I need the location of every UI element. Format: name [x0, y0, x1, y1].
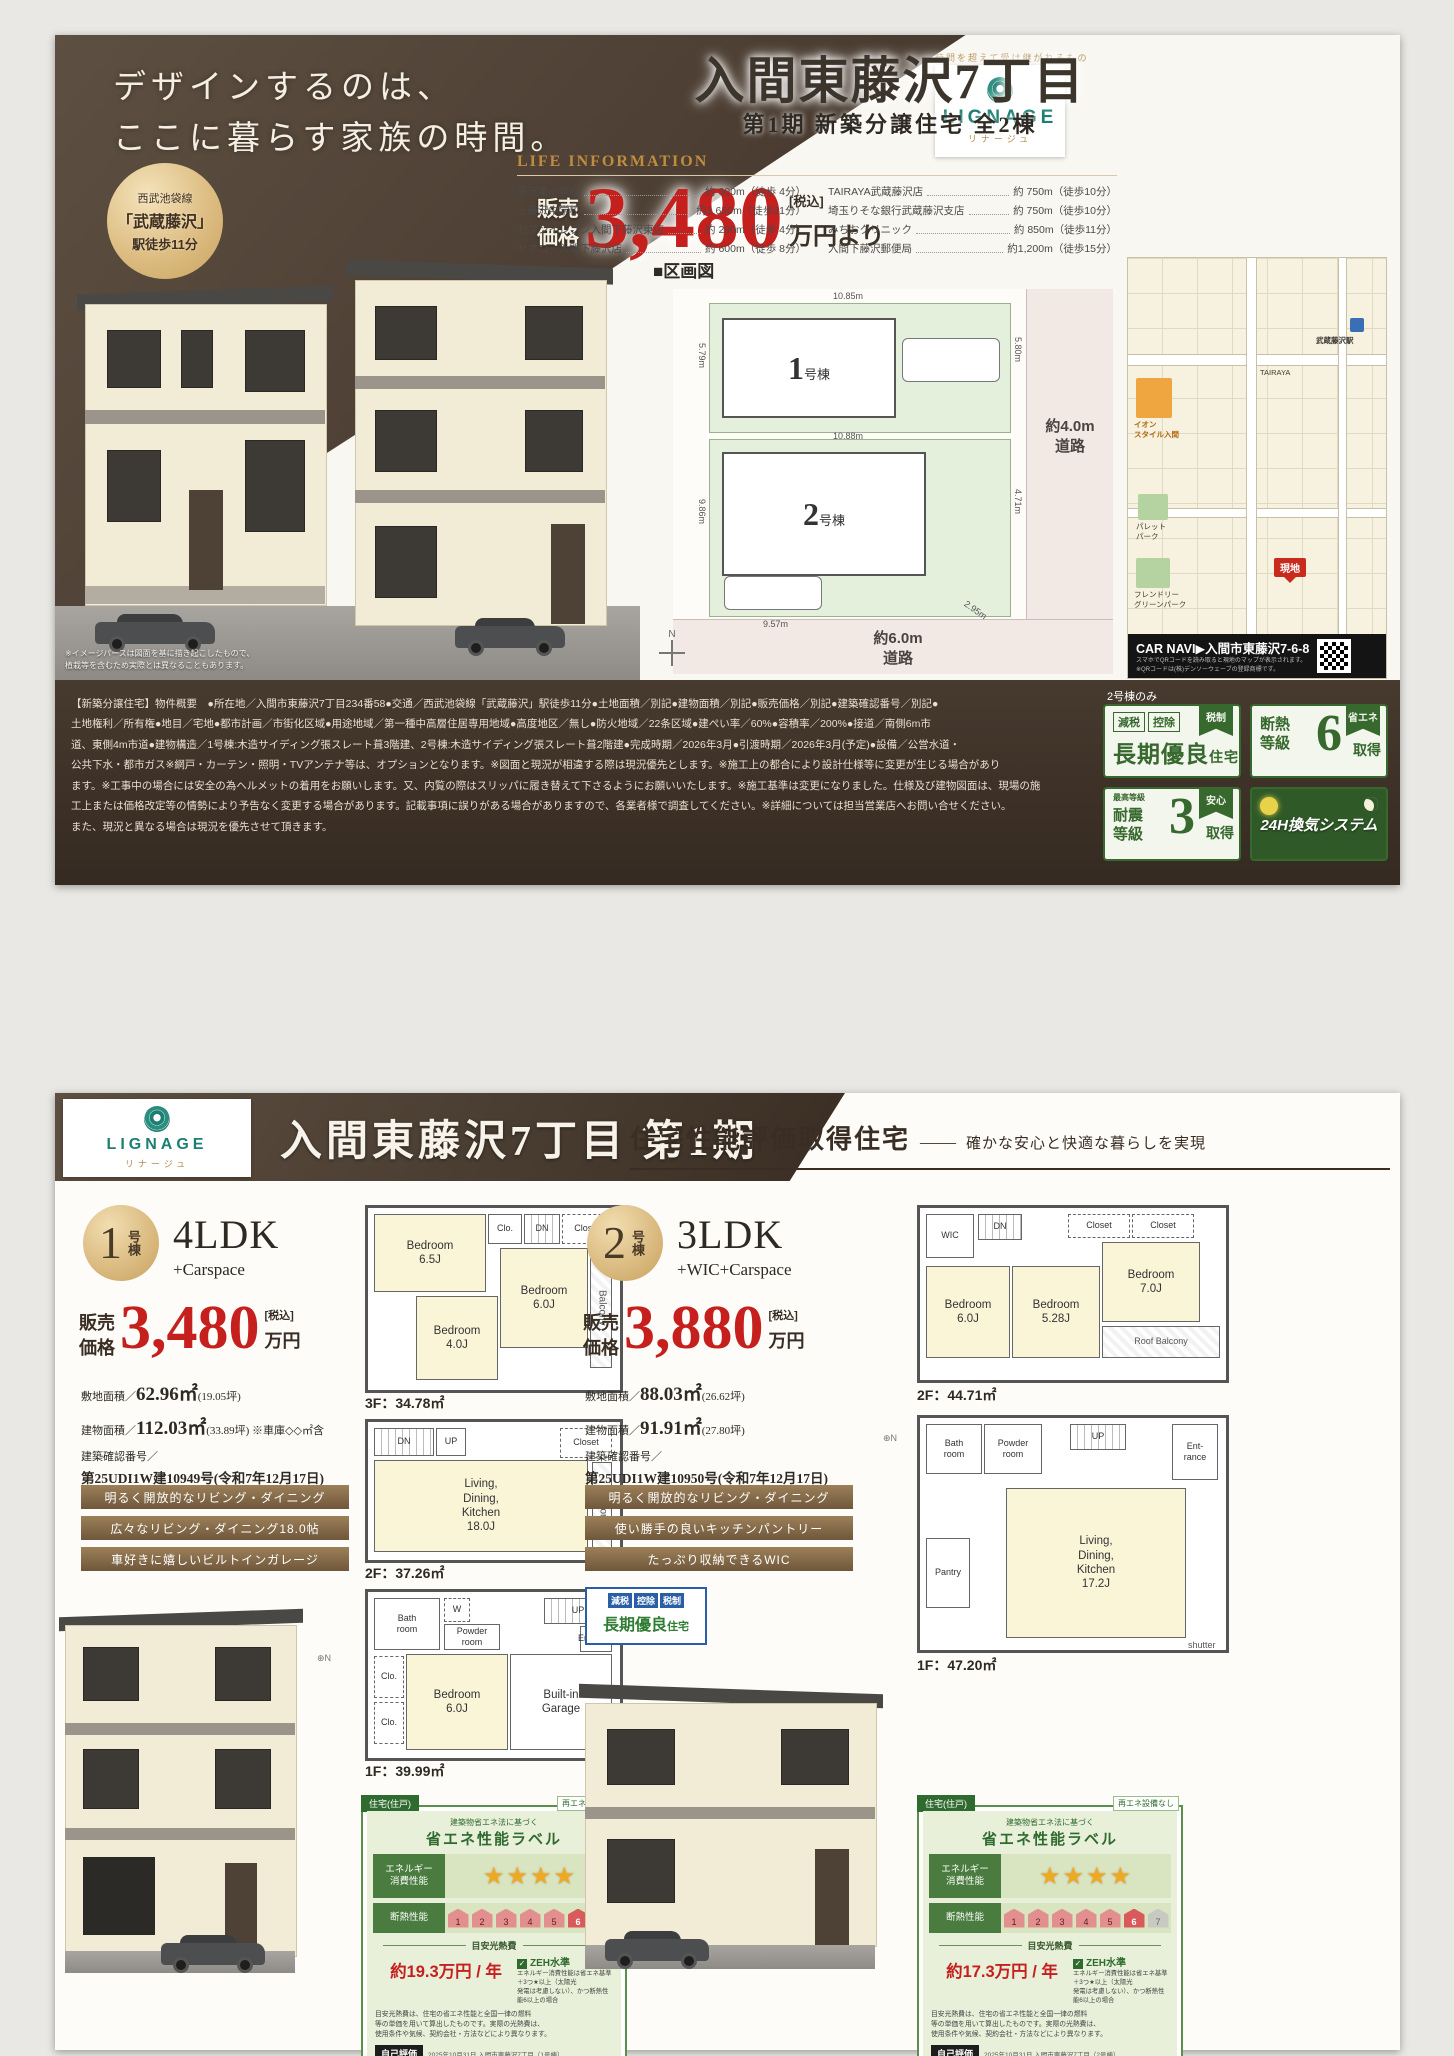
- map-label: パレット パーク: [1136, 522, 1166, 542]
- annual-cost: 約19.3万円 / 年: [375, 1958, 517, 1982]
- unit1-type: 4LDK+Carspace: [173, 1211, 279, 1280]
- page-title: 入間東藤沢7丁目: [610, 41, 1170, 113]
- legal-band: 【新築分譲住宅】物件概要 ●所在地／入間市東藤沢7丁目234番58●交通／西武池…: [55, 680, 1400, 885]
- road-east-label: 約4.0m 道路: [1029, 417, 1111, 456]
- energy-title: 省エネ性能ラベル: [923, 1828, 1177, 1849]
- room-label: Bedroom 6.0J: [406, 1654, 508, 1750]
- energy-title: 省エネ性能ラベル: [367, 1828, 621, 1849]
- moon-icon: [1364, 797, 1378, 811]
- unit2-1f-plan: Bath room Powder room UP Ent- rance Pant…: [917, 1415, 1229, 1653]
- dim-label: 10.88m: [833, 431, 863, 441]
- list-item: みちおクリニック約 850m（徒歩11分）: [828, 222, 1117, 237]
- unit2-energy-label: 住宅(住戸) 再エネ設備なし 建築物省エネ法に基づく 省エネ性能ラベル エネルギ…: [917, 1805, 1183, 2056]
- room-label: Bath room: [374, 1598, 440, 1650]
- legal-line: 道、東側4m市道●建物構造／1号棟:木造サイディング張スレート葺3階建、2号棟:…: [71, 735, 1101, 755]
- cost-small-print: 目安光熱費は、住宅の省エネ性能と全国一律の燃料 等の単価を用いて算出したものです…: [375, 2010, 613, 2041]
- room-label: Bedroom 5.28J: [1012, 1266, 1100, 1358]
- room-label: DN: [524, 1214, 560, 1244]
- unit1-feature-tags: 明るく開放的なリビング・ダイニング 広々なリビング・ダイニング18.0帖 車好き…: [81, 1485, 349, 1571]
- room-label: Pantry: [926, 1538, 970, 1608]
- energy-stars: ★★★★: [1039, 1862, 1133, 1891]
- legal-line: 【新築分譲住宅】物件概要 ●所在地／入間市東藤沢7丁目234番58●交通／西武池…: [71, 694, 1101, 714]
- station-line: 西武池袋線: [138, 190, 193, 206]
- carnavi-address: CAR NAVI▶入間市東藤沢7-6-8: [1136, 638, 1309, 657]
- annual-cost: 約17.3万円 / 年: [931, 1958, 1073, 1982]
- lot-2: 2号棟: [709, 439, 1011, 617]
- site-plan-drawing: 約4.0m 道路 約6.0m 道路 1号棟 2号棟 10: [673, 289, 1113, 674]
- list-item: 藤沢東小学校約 300m（徒歩 4分）: [517, 184, 806, 199]
- page-subtitle: 第1期 新築分譲住宅 全2棟: [655, 107, 1125, 139]
- area-map: イオン スタイル入間 TAIRAYA 武蔵藤沢駅 パレット パーク フレンドリー…: [1127, 257, 1387, 679]
- property-overview-text: 【新築分譲住宅】物件概要 ●所在地／入間市東藤沢7丁目234番58●交通／西武池…: [71, 694, 1101, 837]
- insulation-scale: 1 2 3 4 5 6 7: [1004, 1909, 1169, 1928]
- certification-badges: 減税控除 税制 長期優良住宅 断熱 等級 6 省エネ 取得 最高等級 耐震 等級…: [1103, 704, 1388, 861]
- room-label: WIC: [926, 1214, 974, 1258]
- room-label: Bedroom 7.0J: [1102, 1242, 1200, 1322]
- dim-label: 4.71m: [1013, 489, 1023, 514]
- room-label: Clo.: [488, 1214, 522, 1244]
- feature-tag: 明るく開放的なリビング・ダイニング: [81, 1485, 349, 1509]
- unit1-specs: 敷地面積／62.96㎡(19.05坪) 建物面積／112.03㎡(33.89坪)…: [81, 1379, 361, 1494]
- map-road: [1338, 258, 1347, 634]
- room-label: Clo.: [374, 1702, 404, 1744]
- unit1-render: [65, 1613, 295, 1973]
- room-label: UP: [436, 1428, 466, 1456]
- room-label: Bedroom 6.0J: [926, 1266, 1010, 1358]
- map-road: [1246, 258, 1257, 634]
- map-label: フレンドリー グリーンパーク: [1134, 590, 1186, 610]
- unit2-2f-plan: WIC DN Closet Closet Bedroom 6.0J Bedroo…: [917, 1205, 1229, 1383]
- room-label: Bedroom 6.5J: [374, 1214, 486, 1292]
- room-label: Bedroom 4.0J: [416, 1296, 498, 1380]
- badge-insulation-grade6: 断熱 等級 6 省エネ 取得: [1250, 704, 1388, 778]
- unit1-price: 販売 価格 3,480 [税込]万円: [79, 1299, 301, 1361]
- feature-tag: 車好きに嬉しいビルトインガレージ: [81, 1547, 349, 1571]
- render-disclaimer: ※イメージパースは図面を基に描き起こしたもので、 植栽等を含むため実際とは異なる…: [65, 648, 254, 672]
- life-col-right: TAIRAYA武蔵藤沢店約 750m（徒歩10分） 埼玉りそな銀行武蔵藤沢支店約…: [828, 184, 1117, 260]
- brand-kana: リナージュ: [125, 1157, 189, 1170]
- render-house-2: [355, 264, 605, 624]
- compass-icon: N: [659, 629, 685, 666]
- floor-caption: 1F：39.99㎡: [365, 1761, 444, 1781]
- room-label: Bedroom 6.0J: [500, 1248, 588, 1348]
- carnavi-bar: CAR NAVI▶入間市東藤沢7-6-8 スマホでQRコードを読み取ると現地のマ…: [1128, 634, 1386, 678]
- unit1-number-badge: 1号棟: [83, 1205, 159, 1281]
- room-label: UP: [1070, 1424, 1126, 1450]
- unit2-feature-tags: 明るく開放的なリビング・ダイニング 使い勝手の良いキッチンパントリー たっぷり収…: [585, 1485, 853, 1571]
- page2-header: 入間東藤沢7丁目 第1期 LIGNAGE リナージュ 住宅性能評価取得住宅――確…: [55, 1093, 1400, 1181]
- floor-caption: 3F：34.78㎡: [365, 1393, 444, 1413]
- list-item: TAIRAYA武蔵藤沢店約 750m（徒歩10分）: [828, 184, 1117, 199]
- lignage-logo-card: LIGNAGE リナージュ: [63, 1099, 251, 1177]
- map-grid: [1128, 258, 1386, 678]
- road-south-label: 約6.0m 道路: [843, 629, 953, 668]
- badge-seismic-grade3: 最高等級 耐震 等級 3 安心 取得: [1103, 787, 1241, 861]
- qr-code: [1317, 639, 1351, 673]
- room-label: Living, Dining, Kitchen 17.2J: [1006, 1488, 1186, 1638]
- site-plan: ■区画図 約4.0m 道路 約6.0m 道路 1号棟 2号棟: [653, 257, 1118, 677]
- flyer-scan: デザインするのは、 ここに暮らす家族の時間。 時間を超えて受け継がれるもの LI…: [0, 0, 1454, 2056]
- site-plan-heading: ■区画図: [653, 257, 1118, 282]
- feature-tag: 使い勝手の良いキッチンパントリー: [585, 1516, 853, 1540]
- energy-stars: ★★★★: [483, 1862, 577, 1891]
- cost-divider: 目安光熱費: [933, 1939, 1167, 1952]
- car-illustration: [455, 610, 565, 656]
- room-label: Closet: [1132, 1214, 1194, 1238]
- compass-icon: ⊕N: [883, 1433, 897, 1444]
- room-label: Living, Dining, Kitchen 18.0J: [374, 1460, 588, 1552]
- life-heading: LIFE INFORMATION: [517, 153, 1117, 176]
- energy-law: 建築物省エネ法に基づく: [367, 1817, 621, 1828]
- cost-small-print: 目安光熱費は、住宅の省エネ性能と全国一律の燃料 等の単価を用いて算出したものです…: [931, 2010, 1169, 2041]
- room-label: Clo.: [374, 1656, 404, 1698]
- legal-line: 土地権利／所有権●地目／宅地●都市計画／市街化区域●用途地域／第一種中高層住居専…: [71, 714, 1101, 734]
- cost-divider: 目安光熱費: [377, 1939, 611, 1952]
- room-label: Bath room: [926, 1424, 982, 1474]
- floor-caption: 2F：44.71㎡: [917, 1385, 996, 1405]
- room-label: Closet: [1068, 1214, 1130, 1238]
- map-park-block: [1138, 494, 1168, 520]
- render-house-1: [85, 290, 325, 620]
- lignage-emblem-icon: [144, 1106, 170, 1132]
- catch-copy: デザインするのは、 ここに暮らす家族の時間。: [113, 63, 568, 165]
- map-park-block: [1136, 558, 1170, 588]
- carspace-1: [902, 338, 1000, 382]
- room-label: DN: [374, 1428, 434, 1456]
- room-label: DN: [978, 1214, 1022, 1240]
- list-item: 上藤沢中学校約1,650m（徒歩21分）: [517, 203, 806, 218]
- room-label: Roof Balcony: [1102, 1326, 1220, 1358]
- dim-label: 10.85m: [833, 291, 863, 301]
- energy-tab: 住宅(住戸): [917, 1795, 975, 1812]
- dim-label: 9.86m: [697, 499, 707, 524]
- floor-caption: 1F：47.20㎡: [917, 1655, 996, 1675]
- floor-caption: 2F：37.26㎡: [365, 1563, 444, 1583]
- feature-tag: 広々なリビング・ダイニング18.0帖: [81, 1516, 349, 1540]
- page1-upper: デザインするのは、 ここに暮らす家族の時間。 時間を超えて受け継がれるもの LI…: [55, 35, 1400, 680]
- list-item: 入間下藤沢郵便局約1,200m（徒歩15分）: [828, 241, 1117, 256]
- list-item: セブンイレブン入間下藤沢東店約 290m（徒歩 4分）: [517, 222, 806, 237]
- car-illustration: [605, 1925, 709, 1969]
- dim-label: 9.57m: [763, 619, 788, 629]
- dim-label: 5.79m: [697, 343, 707, 368]
- room-label: W: [444, 1598, 470, 1622]
- car-illustration: [161, 1929, 265, 1973]
- map-road: [1128, 354, 1386, 366]
- dim-label: 5.80m: [1013, 337, 1023, 362]
- legal-line: 工上または価格改定等の情勢により予告なく変更する場合があります。記載事項に誤りが…: [71, 796, 1101, 816]
- compass-icon: ⊕N: [317, 1653, 331, 1664]
- unit2-specs: 敷地面積／88.03㎡(26.62坪) 建物面積／91.91㎡(27.80坪) …: [585, 1379, 875, 1494]
- list-item: 埼玉りそな銀行武蔵藤沢支店約 750m（徒歩10分）: [828, 203, 1117, 218]
- map-label: TAIRAYA: [1260, 368, 1290, 378]
- unit2-number-badge: 2号棟: [587, 1205, 663, 1281]
- room-label: Ent- rance: [1172, 1424, 1218, 1480]
- unit2-only-note: 2号棟のみ: [1107, 688, 1157, 704]
- page2-flyer: 入間東藤沢7丁目 第1期 LIGNAGE リナージュ 住宅性能評価取得住宅――確…: [55, 1093, 1400, 2050]
- unit2-render: [585, 1689, 875, 1969]
- badge-24h-ventilation: 24H換気システム: [1250, 787, 1388, 861]
- map-label: 武蔵藤沢駅: [1316, 336, 1354, 346]
- map-aeon-block: [1136, 378, 1172, 418]
- lot-1: 1号棟: [709, 303, 1011, 433]
- unit2-type: 3LDK+WIC+Carspace: [677, 1211, 792, 1280]
- unit2-longterm-badge: 減税控除税制 長期優良住宅: [585, 1587, 707, 1645]
- brand-name: LIGNAGE: [107, 1136, 208, 1154]
- life-information: LIFE INFORMATION 藤沢東小学校約 300m（徒歩 4分） 上藤沢…: [517, 153, 1117, 260]
- room-label: Powder room: [984, 1424, 1042, 1474]
- map-label: イオン スタイル入間: [1134, 420, 1179, 440]
- room-label: Powder room: [444, 1624, 500, 1650]
- feature-tag: 明るく開放的なリビング・ダイニング: [585, 1485, 853, 1509]
- carspace-2: [724, 576, 822, 610]
- legal-line: ます。※工事中の場合には安全の為ヘルメットの着用をお願いします。又、内覧の際はス…: [71, 776, 1101, 796]
- map-station-block: [1350, 318, 1364, 332]
- renewable-note: 再エネ設備なし: [1113, 1796, 1179, 1811]
- sun-icon: [1260, 797, 1278, 815]
- energy-law: 建築物省エネ法に基づく: [923, 1817, 1177, 1828]
- page1-flyer: デザインするのは、 ここに暮らす家族の時間。 時間を超えて受け継がれるもの LI…: [55, 35, 1400, 885]
- performance-headline: 住宅性能評価取得住宅――確かな安心と快適な暮らしを実現: [630, 1119, 1390, 1170]
- energy-tab: 住宅(住戸): [361, 1795, 419, 1812]
- unit2-price: 販売 価格 3,880 [税込]万円: [583, 1299, 805, 1361]
- site-marker: 現地: [1274, 558, 1306, 577]
- station-name: 「武蔵藤沢」: [117, 208, 213, 232]
- shutter-label: shutter: [1188, 1640, 1216, 1650]
- qr-note: スマホでQRコードを読み取ると現地のマップが表示されます。 ※QRコードは(株)…: [1136, 657, 1309, 675]
- life-col-left: 藤沢東小学校約 300m（徒歩 4分） 上藤沢中学校約1,650m（徒歩21分）…: [517, 184, 806, 260]
- badge-long-term-quality: 減税控除 税制 長期優良住宅: [1103, 704, 1241, 778]
- legal-line: 公共下水・都市ガス※網戸・カーテン・照明・TVアンテナ等は、オプションとなります…: [71, 755, 1101, 775]
- legal-line: また、現況と異なる場合は現況を優先させて頂きます。: [71, 817, 1101, 837]
- feature-tag: たっぷり収納できるWIC: [585, 1547, 853, 1571]
- exterior-render: ※イメージパースは図面を基に描き起こしたもので、 植栽等を含むため実際とは異なる…: [55, 250, 640, 680]
- car-illustration: [95, 604, 215, 652]
